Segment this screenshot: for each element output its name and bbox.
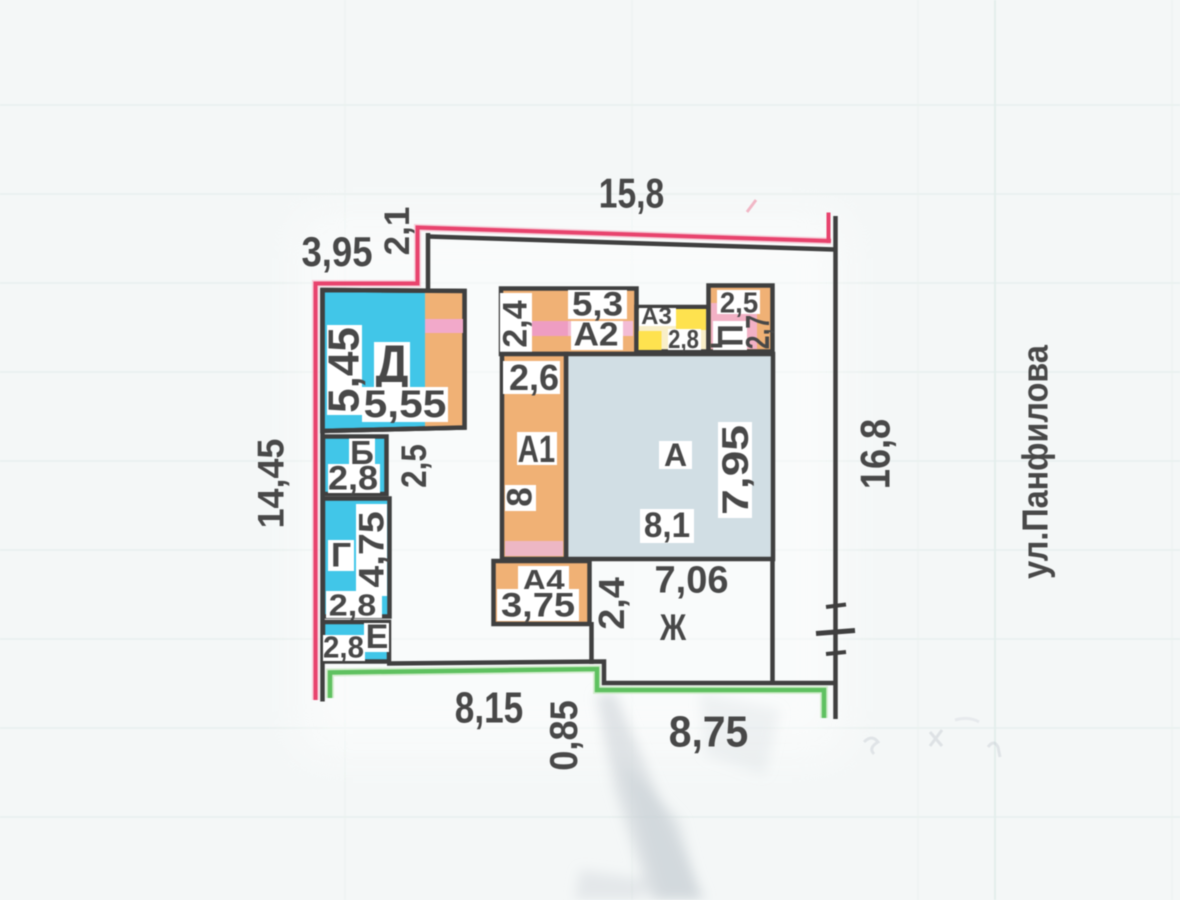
svg-text:2,8: 2,8 <box>328 460 378 498</box>
svg-text:2,8: 2,8 <box>323 631 364 665</box>
svg-text:2,5: 2,5 <box>720 286 758 319</box>
svg-text:4,75: 4,75 <box>352 511 392 587</box>
svg-text:16,8: 16,8 <box>853 419 899 489</box>
svg-text:3,75: 3,75 <box>501 585 575 624</box>
svg-text:2,7: 2,7 <box>741 315 777 349</box>
svg-text:15,8: 15,8 <box>599 171 664 217</box>
svg-text:А1: А1 <box>518 428 555 471</box>
svg-text:7,06: 7,06 <box>655 560 729 602</box>
svg-text:8,1: 8,1 <box>644 506 690 545</box>
svg-text:5,55: 5,55 <box>364 382 447 426</box>
svg-text:8,75: 8,75 <box>669 708 749 757</box>
svg-text:Г: Г <box>331 536 351 574</box>
svg-text:А3: А3 <box>641 303 672 330</box>
svg-text:0,85: 0,85 <box>542 700 585 771</box>
svg-text:2,4: 2,4 <box>592 577 632 630</box>
svg-text:А: А <box>664 437 687 473</box>
svg-text:Ж: Ж <box>659 608 687 649</box>
svg-text:2,8: 2,8 <box>668 325 699 354</box>
svg-text:8,15: 8,15 <box>455 684 523 733</box>
svg-text:3,95: 3,95 <box>301 229 372 276</box>
svg-text:2,6: 2,6 <box>509 357 559 398</box>
svg-text:8: 8 <box>501 487 540 506</box>
svg-text:Е: Е <box>366 618 389 656</box>
svg-text:2,4: 2,4 <box>497 300 535 347</box>
svg-text:А2: А2 <box>573 317 618 354</box>
svg-text:2,5: 2,5 <box>396 444 435 488</box>
svg-text:7,95: 7,95 <box>714 425 756 515</box>
svg-text:2,1: 2,1 <box>378 207 417 256</box>
svg-text:2,8: 2,8 <box>329 588 376 622</box>
svg-text:14,45: 14,45 <box>250 439 292 529</box>
svg-text:5,45: 5,45 <box>320 327 369 413</box>
svg-text:ул.Панфилова: ул.Панфилова <box>1016 344 1056 579</box>
